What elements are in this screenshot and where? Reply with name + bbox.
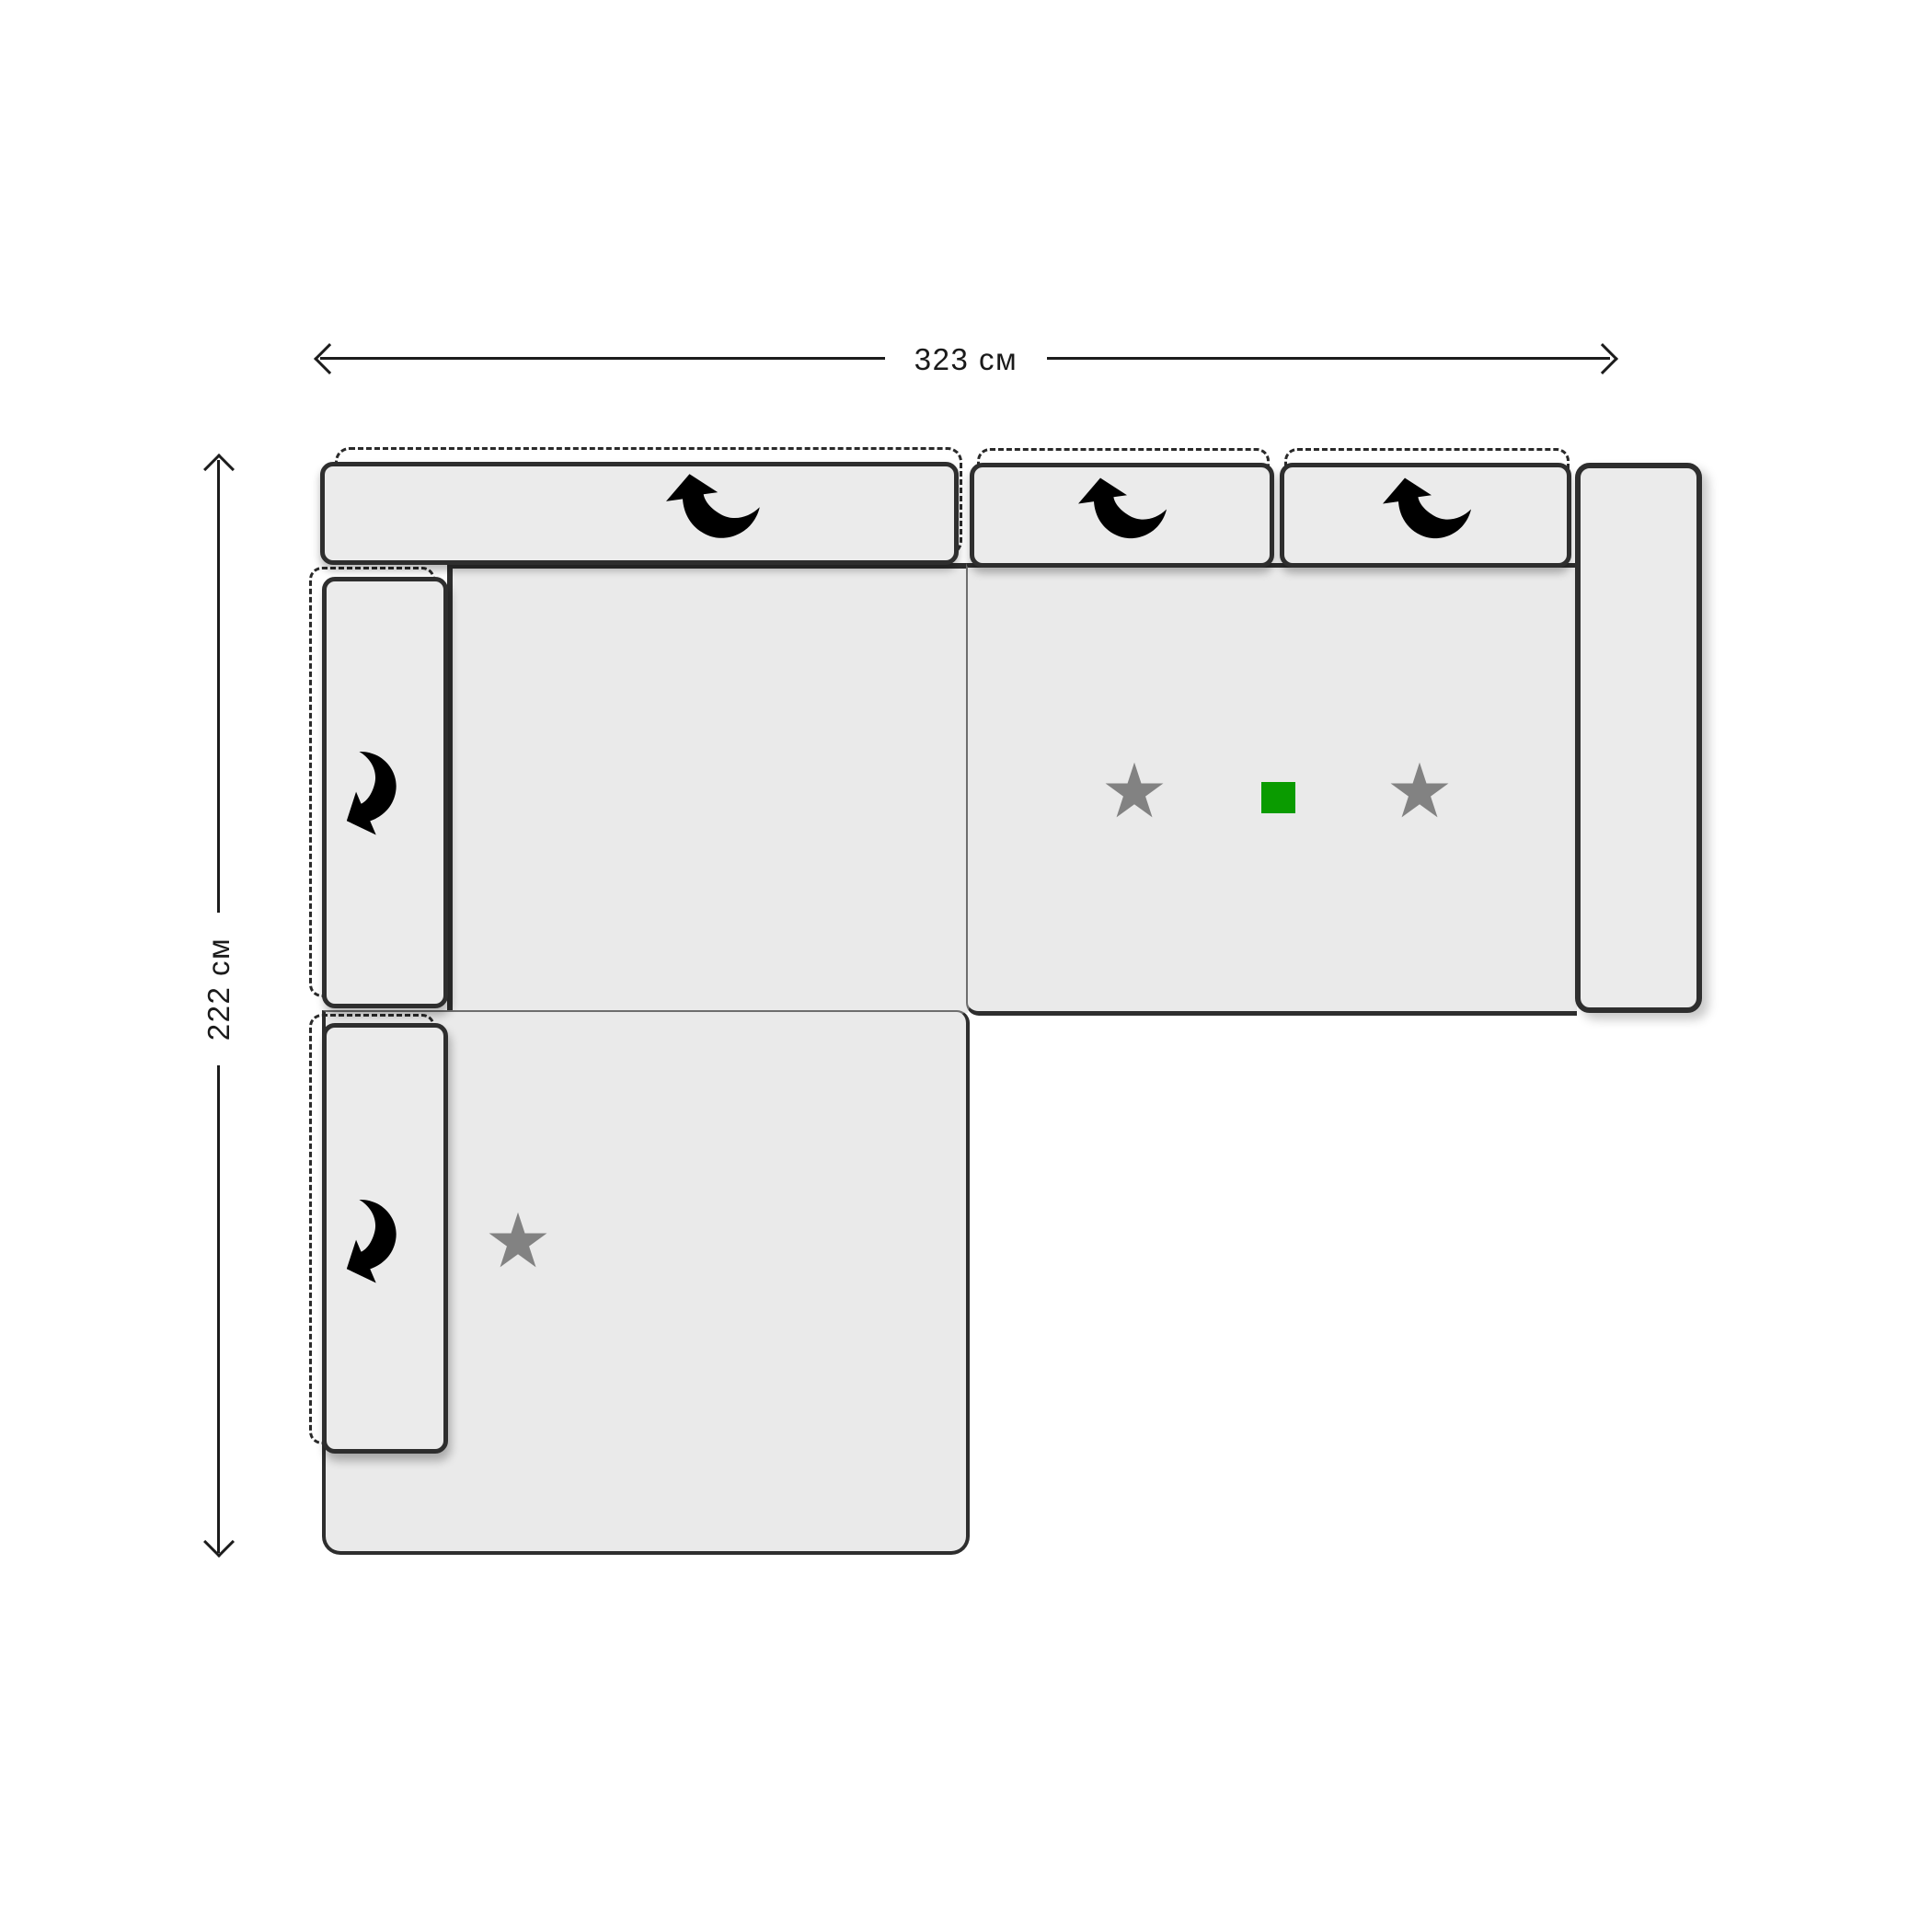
width-dimension-label: 323 см xyxy=(914,342,1018,377)
star-marker: ★ xyxy=(1386,754,1454,830)
height-dimension-label: 222 см xyxy=(201,937,236,1041)
arrowhead-up-icon xyxy=(203,454,235,485)
height-dimension-line-bottom xyxy=(217,1065,220,1553)
star-marker: ★ xyxy=(484,1204,552,1280)
backrest-wide-cushion xyxy=(320,462,959,565)
backrest-middle-cushion xyxy=(970,463,1274,568)
backrest-right-cushion xyxy=(1280,463,1571,568)
armrest-left-bottom xyxy=(322,1023,448,1454)
width-dimension-line-right xyxy=(1047,357,1610,360)
armrest-right xyxy=(1575,463,1702,1013)
width-dimension-line-left xyxy=(320,357,885,360)
arrowhead-right-icon xyxy=(1587,343,1618,374)
seat-section-left xyxy=(447,563,968,1013)
height-dimension-line-top xyxy=(217,460,220,913)
green-square-marker xyxy=(1261,782,1295,813)
star-marker: ★ xyxy=(1100,754,1168,830)
sofa-top-view-diagram: 323 см 222 см ★ ★ ★ xyxy=(0,0,1932,1932)
arrowhead-down-icon xyxy=(203,1526,235,1558)
arrowhead-left-icon xyxy=(314,343,345,374)
armrest-left-top xyxy=(322,577,448,1008)
